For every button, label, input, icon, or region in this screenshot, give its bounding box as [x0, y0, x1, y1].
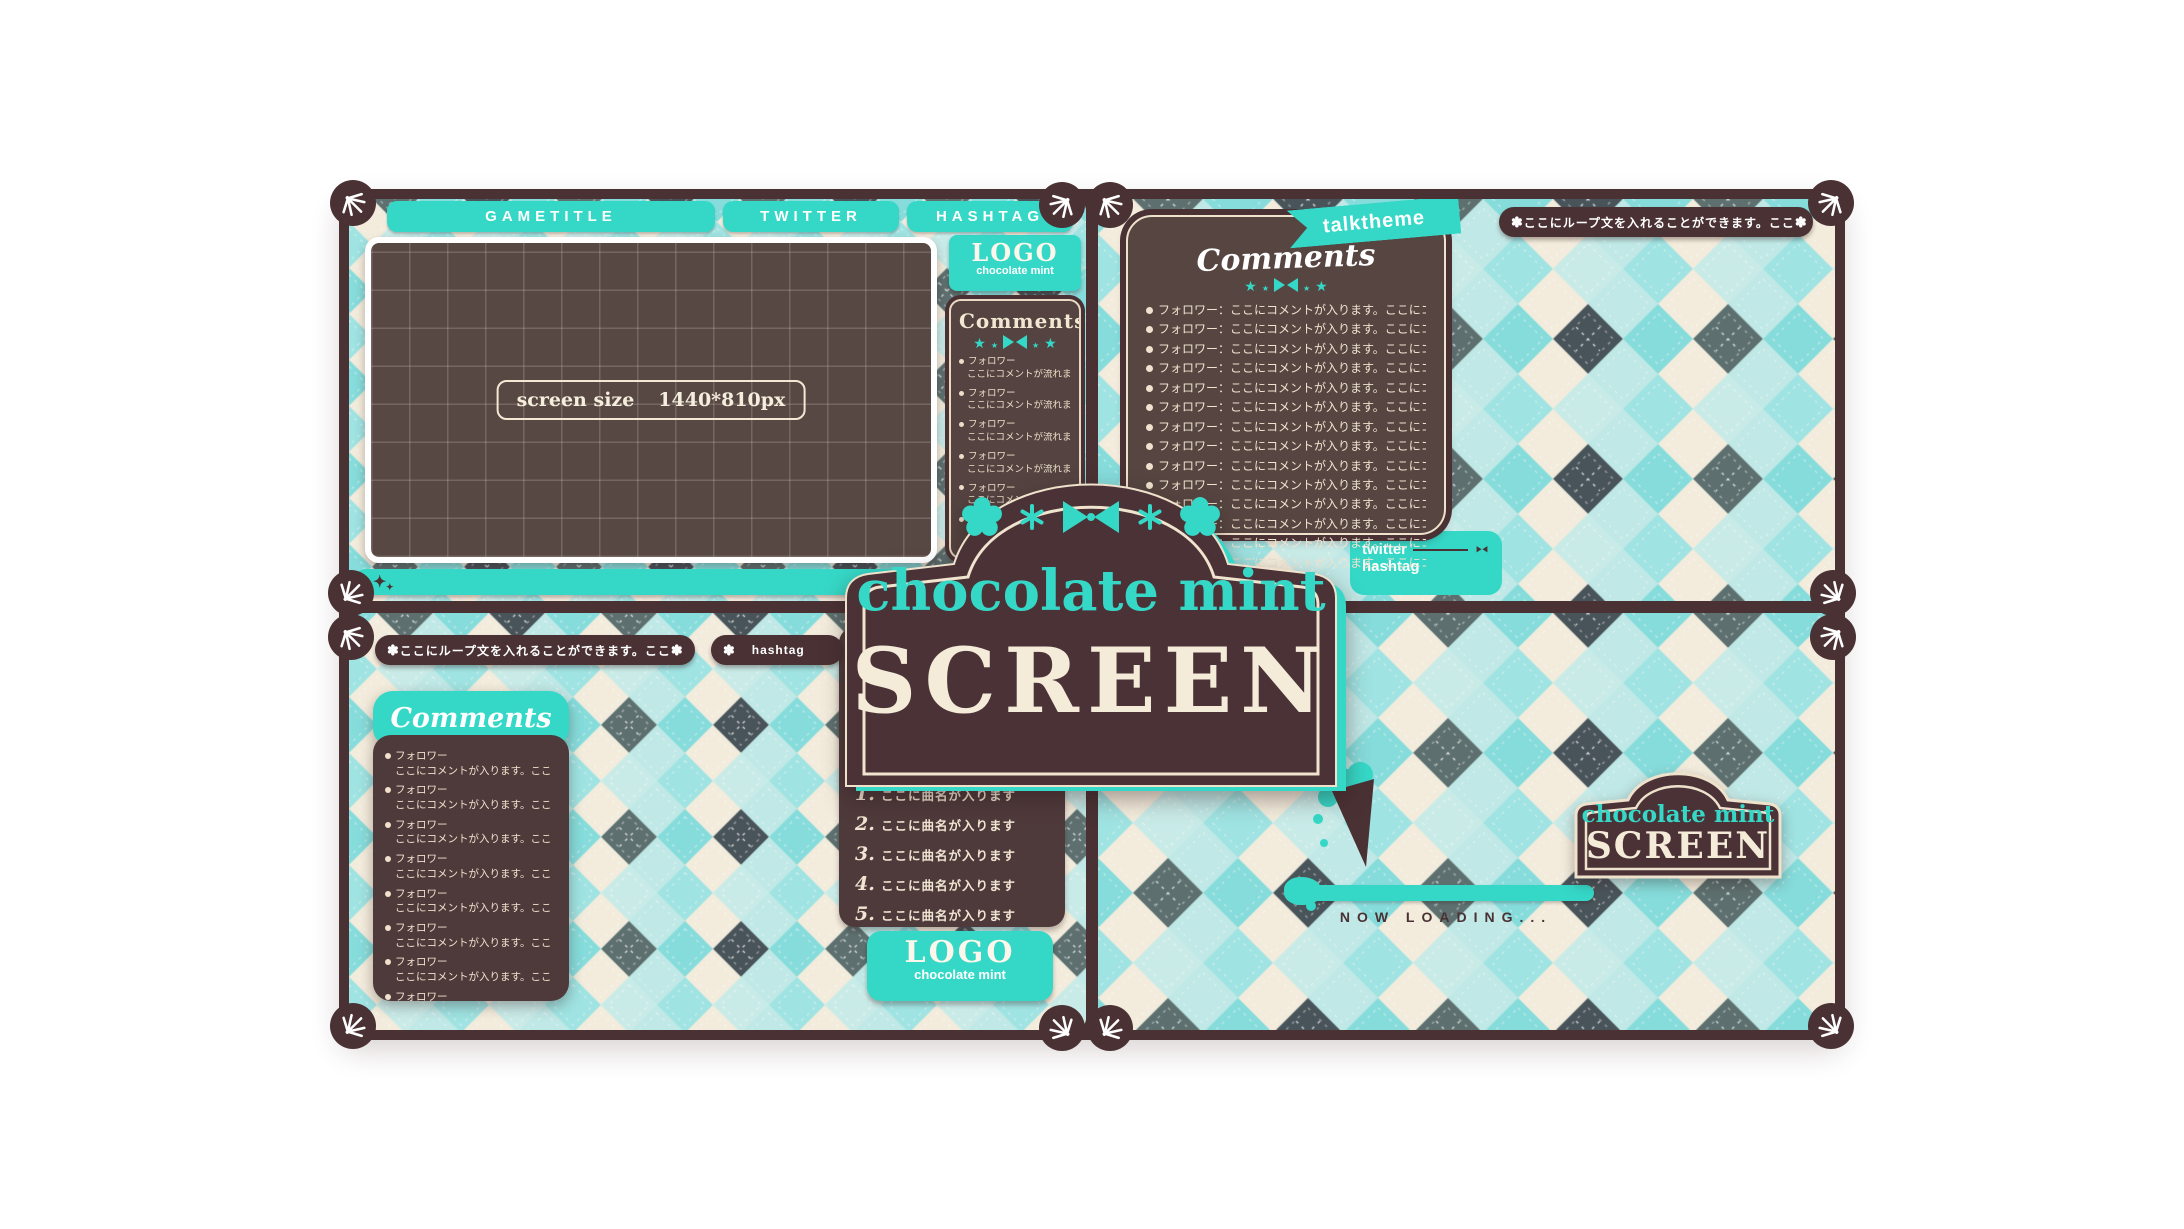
hashtag-text: hashtag: [752, 643, 805, 657]
comment-list: フォロワー ここにコメントが入ります。ここ フォロワー ここにコメントが入ります…: [385, 749, 557, 1001]
tab-twitter[interactable]: TWITTER: [723, 201, 899, 232]
leaf-burst-icon: [1087, 182, 1133, 228]
comment-entry: フォロワー ここにコメントが入ります。ここ: [385, 955, 557, 984]
leaf-burst-icon: [328, 570, 374, 616]
leaf-burst-icon: [1087, 1005, 1133, 1051]
loop-text-badge: ✽ ここにループ文を入れることができます。ここ ✽: [375, 635, 695, 665]
logo-title: LOGO: [867, 936, 1053, 969]
tab-bar: GAMETITLE TWITTER HASHTAG: [387, 201, 1073, 232]
brand-title: chocolate mint: [836, 558, 1346, 624]
comment-entry: フォロワー ここにコメントが入ります。ここ: [385, 887, 557, 916]
comment-entry: フォロワー ここにコメントが流れます: [959, 388, 1071, 414]
leaf-burst-icon: [328, 614, 374, 660]
asterisk-icon: [1137, 504, 1163, 530]
song-row: 5. ここに曲名が入ります: [855, 903, 1057, 925]
flower-icon: [1179, 496, 1221, 538]
loading-progress-bar: [1298, 885, 1594, 901]
ribbon-bow-icon: [1477, 546, 1488, 553]
comment-entry: フォロワー ここにコメントが入ります。ここ: [385, 852, 557, 881]
loading-plaque: chocolate mint SCREEN: [1570, 757, 1786, 881]
tab-gametitle[interactable]: GAMETITLE: [387, 201, 715, 232]
flower-icon: ✽: [671, 642, 684, 659]
song-row: 3. ここに曲名が入ります: [855, 843, 1057, 865]
logo-title: LOGO: [949, 239, 1081, 267]
asterisk-icon: [1019, 504, 1045, 530]
comment-line: フォロワー：ここにコメントが入ります。ここにコメ: [1146, 301, 1426, 320]
screen-size-caption: screen size: [517, 389, 635, 411]
flower-icon: ✽: [387, 642, 400, 659]
star-bow-star-icons: ★★★★: [1146, 278, 1426, 293]
flower-icon: ✽: [723, 642, 736, 659]
comment-line: フォロワー：ここにコメントが入ります。ここにコメ: [1146, 359, 1426, 378]
ribbon-bow-icon: [1061, 499, 1121, 535]
loading-status: NOW LOADING...: [1298, 909, 1594, 925]
brand-subtitle: SCREEN: [836, 628, 1346, 734]
logo-box: LOGO chocolate mint: [949, 235, 1081, 291]
brand-plaque: chocolate mint SCREEN: [836, 436, 1346, 791]
comment-line: フォロワー：ここにコメントが入ります。ここにコメ: [1146, 398, 1426, 417]
logo-box: LOGO chocolate mint: [867, 931, 1053, 1001]
plaque-subtitle: SCREEN: [1570, 825, 1786, 867]
flower-icon: ✽: [1511, 214, 1524, 231]
leaf-burst-icon: [1039, 182, 1085, 228]
comment-line: フォロワー：ここにコメントが入ります。ここにコメ: [1146, 340, 1426, 359]
screen-size-label: screen size 1440*810px: [497, 380, 806, 420]
hashtag-badge: ✽ hashtag: [711, 635, 843, 665]
comment-line: フォロワー：ここにコメントが入ります。ここにコメ: [1146, 418, 1426, 437]
leaf-burst-icon: [1810, 570, 1856, 616]
comments-title: Comments: [959, 309, 1071, 333]
leaf-burst-icon: [1810, 614, 1856, 660]
comment-entry: フォロワー ここにコメントが入ります。ここ: [385, 749, 557, 778]
comment-entry: フォロワー ここにコメントが流れます: [959, 356, 1071, 382]
comment-line: フォロワー：ここにコメントが入ります。ここにコメ: [1146, 379, 1426, 398]
leaf-burst-icon: [1808, 180, 1854, 226]
overlay-template-sheet: GAMETITLE TWITTER HASHTAG screen size 14…: [339, 189, 1845, 1040]
logo-subtitle: chocolate mint: [867, 967, 1053, 982]
comment-entry: フォロワー ここにコメントが入ります。ここ: [385, 921, 557, 950]
loop-text-badge: ✽ ここにループ文を入れることができます。ここ ✽: [1499, 207, 1813, 237]
star-bow-star-icons: ★★★★: [959, 335, 1071, 350]
leaf-burst-icon: [1039, 1005, 1085, 1051]
plaque-title: chocolate mint: [1570, 801, 1786, 828]
logo-subtitle: chocolate mint: [949, 265, 1081, 277]
comment-entry: フォロワー ここにコメントが入ります。ここ: [385, 990, 557, 1001]
comment-entry: フォロワー ここにコメントが入ります。ここ: [385, 818, 557, 847]
leaf-burst-icon: [1808, 1003, 1854, 1049]
sparkle-icon: ✦: [373, 572, 386, 592]
comment-entry: フォロワー ここにコメントが入ります。ここ: [385, 783, 557, 812]
song-row: 2. ここに曲名が入ります: [855, 813, 1057, 835]
ribbon-bow-icon: [1003, 335, 1027, 350]
plaque-decorations: [836, 496, 1346, 538]
screen-size-value: 1440*810px: [658, 389, 785, 411]
leaf-burst-icon: [330, 180, 376, 226]
comments-title: Comments: [1145, 236, 1426, 281]
comment-line: フォロワー：ここにコメントが入ります。ここにコメ: [1146, 320, 1426, 339]
loop-text: ここにループ文を入れることができます。ここ: [400, 642, 671, 659]
comments-card: Comments フォロワー ここにコメントが入ります。ここ フォロワー ここに…: [373, 691, 569, 1001]
song-list: 1. ここに曲名が入ります 2. ここに曲名が入ります 3. ここに曲名が入りま…: [855, 783, 1057, 925]
song-row: 4. ここに曲名が入ります: [855, 873, 1057, 895]
flower-icon: ✽: [1795, 214, 1808, 231]
flower-icon: [961, 496, 1003, 538]
leaf-burst-icon: [330, 1003, 376, 1049]
ribbon-bow-icon: [1274, 278, 1298, 293]
loop-text: ここにループ文を入れることができます。ここ: [1524, 214, 1795, 231]
